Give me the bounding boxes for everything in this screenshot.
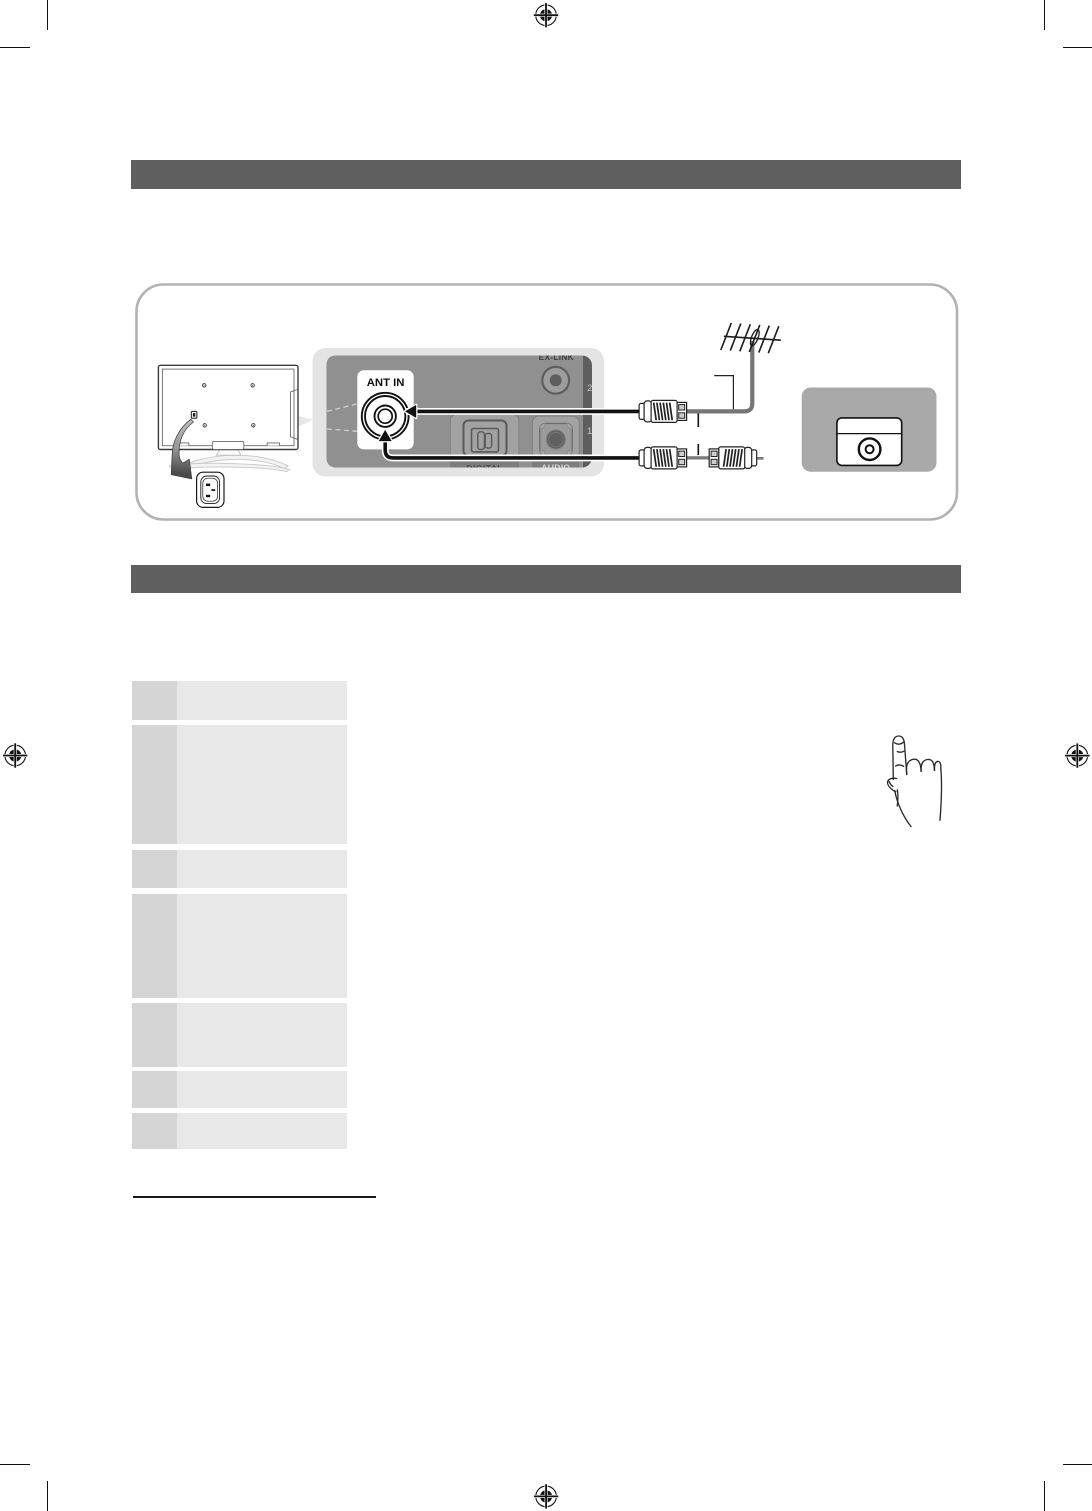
svg-text:ANT IN: ANT IN [367, 377, 405, 389]
svg-text:2: 2 [587, 383, 592, 394]
svg-text:1: 1 [587, 426, 592, 437]
